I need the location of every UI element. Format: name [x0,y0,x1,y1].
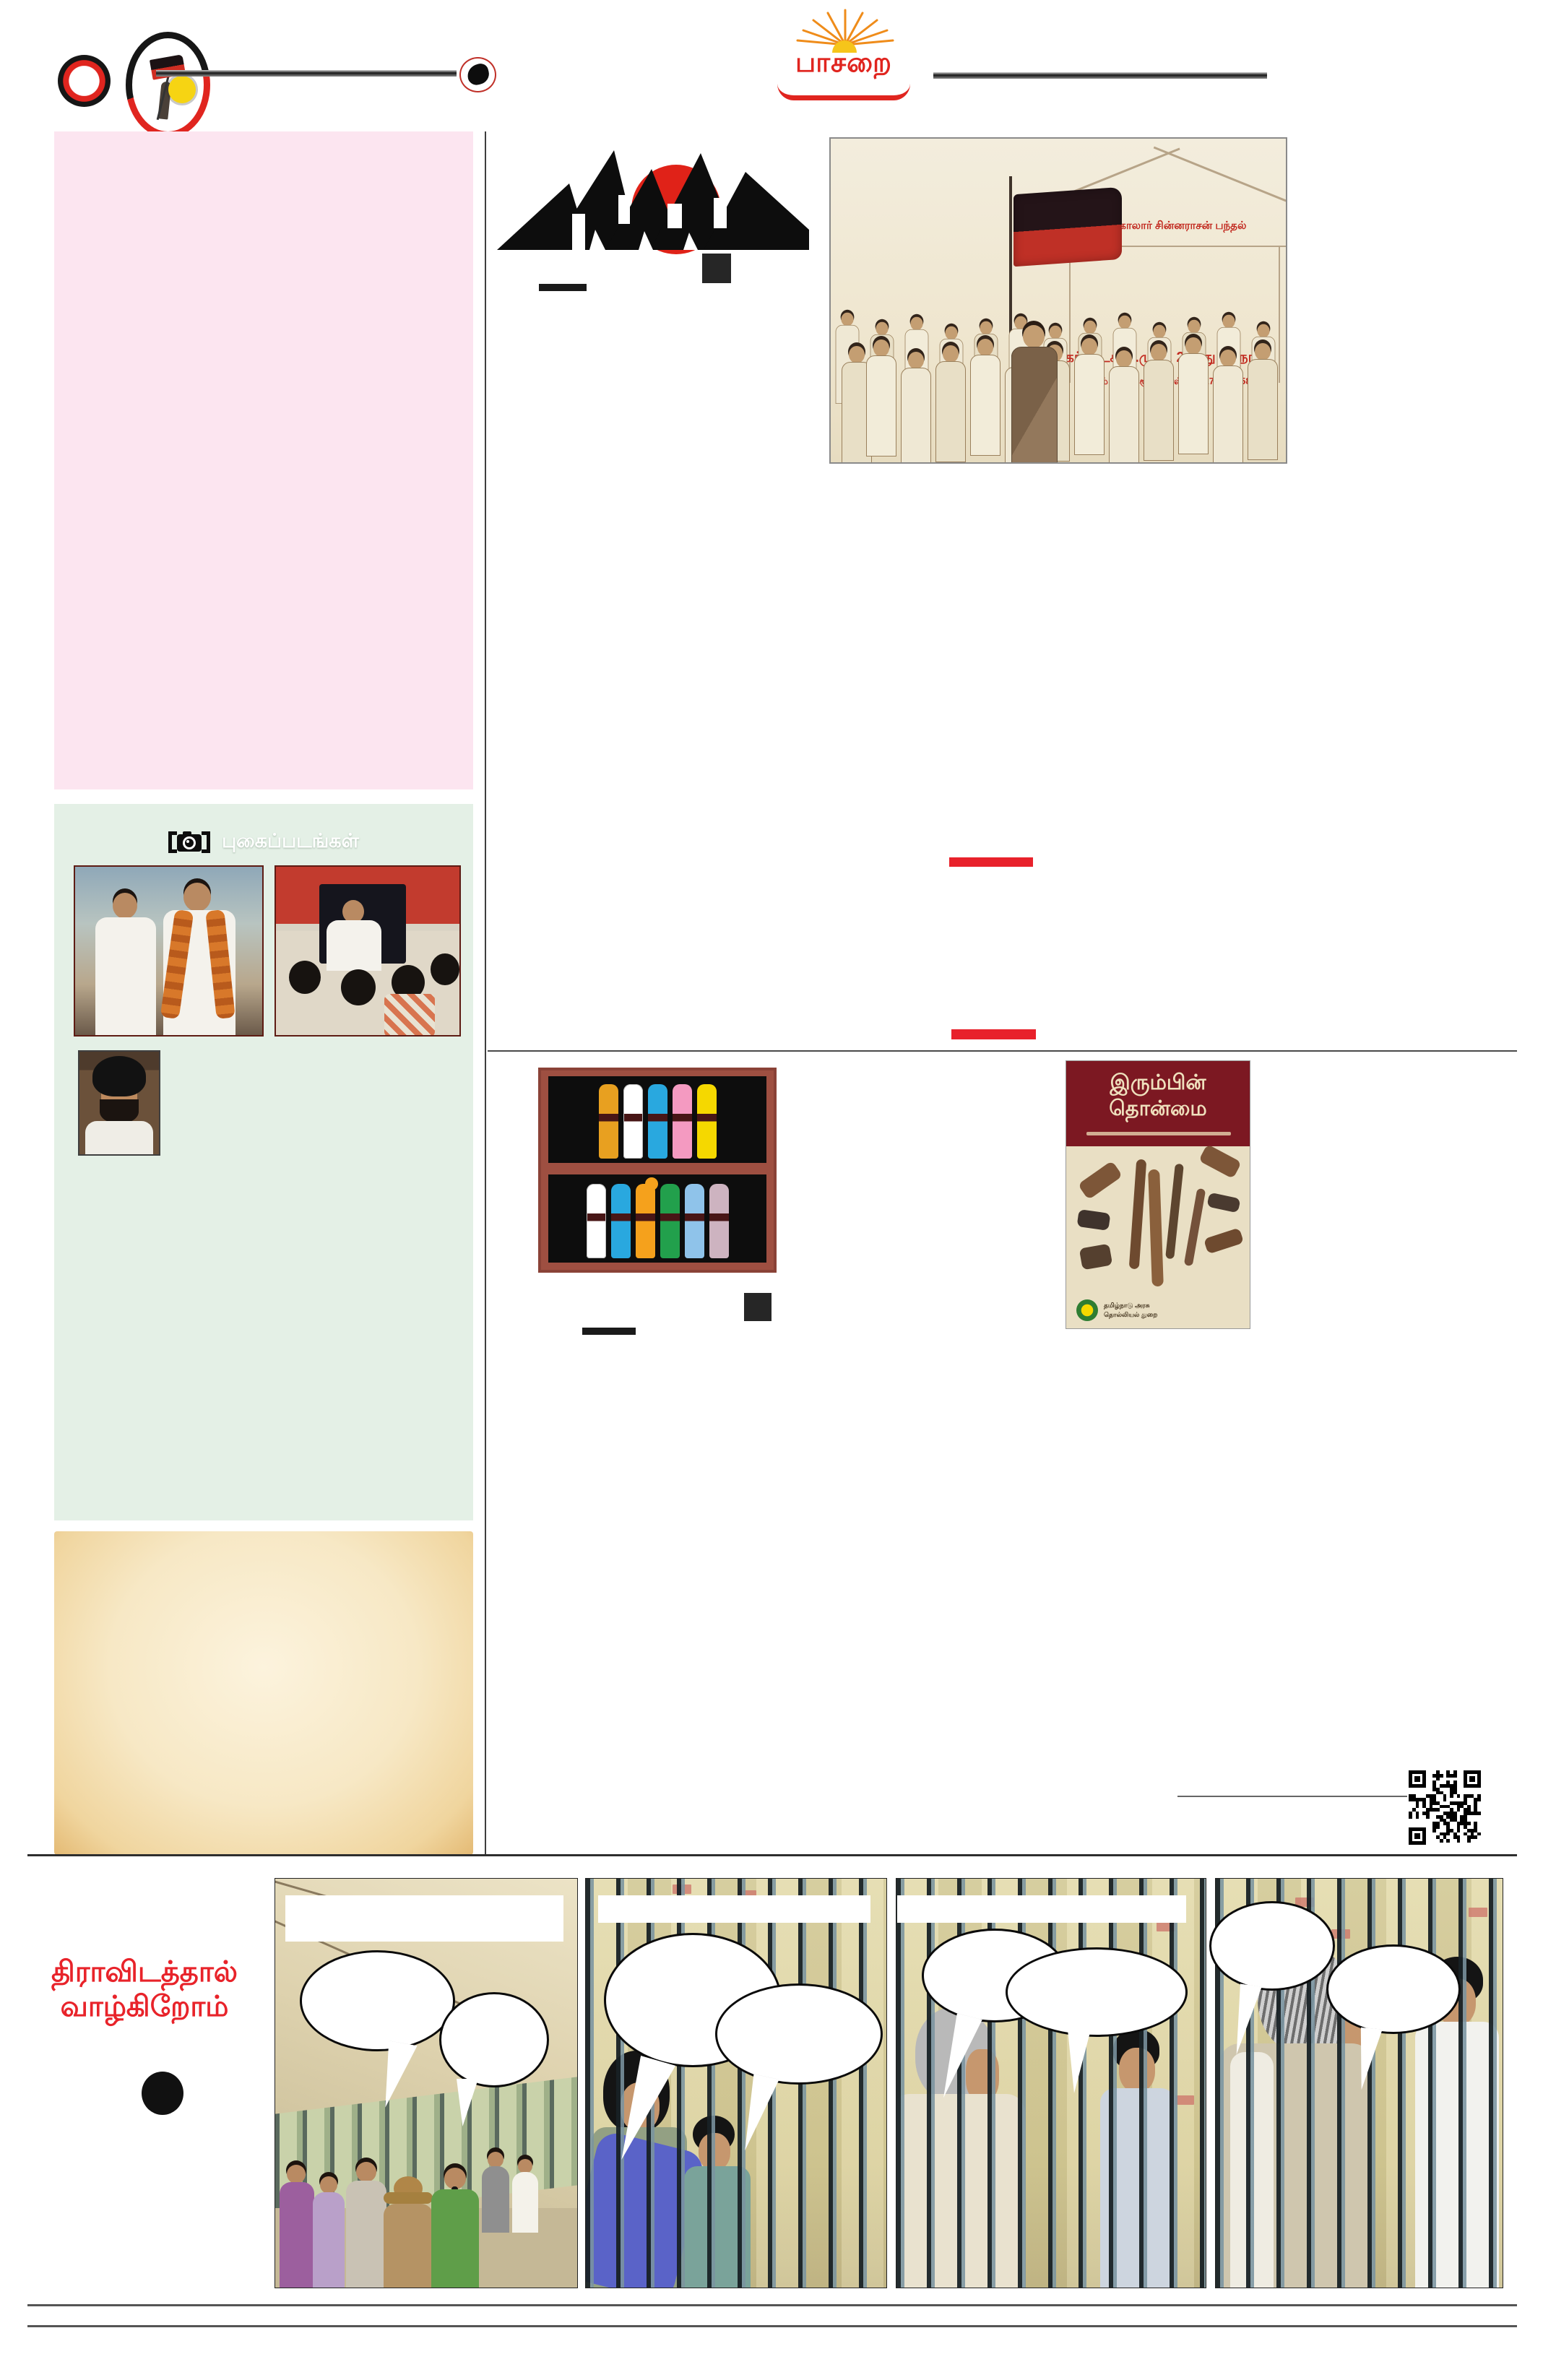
patterned-sari [384,994,435,1037]
lead-article-box [54,131,473,789]
book-spine [697,1084,717,1159]
crowd-figure [1107,350,1141,464]
iron-blade [1129,1159,1147,1270]
byline-dash [539,284,587,291]
flag-holder-figure [1008,325,1059,464]
crowd-head [289,961,321,994]
header-rule-left [156,70,457,77]
book-spine [587,1184,606,1258]
bull-icon [465,62,491,87]
photos-section: புகைப்படங்கள் [54,804,473,1520]
signature-rule [1177,1796,1407,1797]
byline-dash [582,1328,636,1335]
ring-badge-icon [58,55,111,107]
book-title: இரும்பின் தொன்மை [1066,1070,1250,1122]
speech-bubble [1006,1947,1188,2037]
crowd-figure [899,352,933,464]
crowd-head [341,969,376,1005]
person-head [183,883,211,912]
manadu-logo [497,129,809,256]
masthead: பாசறை [757,9,930,101]
column-divider [485,131,486,1855]
iron-tool [1203,1228,1244,1255]
book-subtitle-bar [1086,1132,1231,1135]
speech-bubble [439,1992,549,2087]
publisher-line1: தமிழ்நாடு அரசு [1104,1301,1157,1310]
comic-strip [275,1878,1503,2288]
crowd-figure [1211,350,1245,464]
comic-caption-box [598,1895,870,1923]
portrait-hair [92,1056,146,1096]
book-cover-header: இரும்பின் தொன்மை [1066,1061,1250,1146]
rising-sun-icon [168,76,196,103]
crowd-figure [969,339,1002,462]
iron-tool [1206,1193,1240,1213]
party-logo-icon [126,32,210,138]
book-spine [611,1184,631,1258]
photos-section-title: புகைப்படங்கள் [222,830,359,855]
photo-portrait [78,1050,160,1156]
comic-title-line2: வாழ்கிறோம் [22,1989,267,2024]
parchment-article-box [54,1531,473,1855]
speech-bubble [715,1983,883,2085]
footer-bar [27,2304,1517,2327]
iron-tool [1079,1244,1113,1271]
iron-blade [1148,1169,1164,1286]
publisher-line2: தொல்லியல் துறை [1104,1310,1157,1320]
pasarai-library-logo [538,1068,777,1273]
comic-caption-box [285,1895,563,1942]
person-figure [95,917,156,1037]
bull-badge-icon [459,57,496,92]
section-end-square [702,254,731,283]
iron-blade [1184,1188,1206,1266]
book-spine [623,1084,643,1159]
tent-roof-line [1154,147,1287,203]
bookshelf-top-row [548,1076,766,1163]
crowd [831,299,1286,464]
section-end-square [744,1293,771,1321]
speech-bubble [300,1950,455,2051]
photos-header: புகைப்படங்கள் [54,828,473,856]
iron-tool [1198,1144,1242,1179]
crowd-figure [1073,338,1106,461]
crowd-head [431,953,459,985]
book-spine [660,1184,680,1258]
iron-tool [1078,1161,1123,1200]
book-cover-irumbin-thonmai: இரும்பின் தொன்மை தமிழ்நாடு அரசு தொல்லியல… [1066,1060,1250,1329]
book-publisher: தமிழ்நாடு அரசு தொல்லியல் துறை [1076,1299,1157,1321]
book-spine [709,1184,729,1258]
photo-memorial-event [275,865,461,1037]
book-title-line2: தொன்மை [1066,1096,1250,1122]
comic-panel-2 [585,1878,887,2288]
book-spine [673,1084,692,1159]
comic-title-dot [142,2072,183,2115]
comic-panel-3 [896,1878,1206,2288]
crowd-figure [934,345,967,464]
book-spine [599,1084,618,1159]
bookshelf-bottom-row [548,1174,766,1263]
comic-caption-box [897,1895,1186,1923]
masthead-title: பாசறை [757,49,930,77]
person-head [113,893,137,919]
camera-icon [168,828,210,856]
comic-title: திராவிடத்தால் வாழ்கிறோம் [22,1955,267,2024]
iron-blade [1165,1164,1184,1260]
crowd-figure [1246,343,1279,464]
header-rule-right [933,72,1267,79]
story-divider [488,1050,1517,1052]
letter-dot [645,1177,658,1190]
comic-section-divider [27,1854,1517,1856]
portrait-shirt [85,1121,153,1156]
govt-emblem-icon [1076,1299,1098,1321]
masthead-underline [777,84,910,100]
crowd-figure [1142,344,1175,464]
book-title-line1: இரும்பின் [1066,1070,1250,1096]
person-figure [327,920,381,971]
book-spine [636,1184,655,1258]
crowd-figure [1177,337,1210,460]
pull-quote-bar [951,1029,1036,1039]
book-spine [648,1084,667,1159]
comic-title-line1: திராவிடத்தால் [22,1955,267,1989]
iron-tool [1077,1209,1111,1231]
conference-illustration: கோலார் சின்னராசன் பந்தல் கர்நாடக தி.மு.க… [829,137,1287,464]
speech-bubble [1209,1901,1335,1991]
party-logo-inner [132,38,204,131]
qr-code [1409,1768,1481,1845]
speech-bubble [1326,1944,1461,2034]
crowd-figure [865,339,898,462]
portrait-beard [100,1099,139,1124]
dmk-flag [1013,187,1122,267]
pull-quote-bar [949,857,1033,867]
book-spine [685,1184,704,1258]
photo-shawl-honour [74,865,264,1037]
